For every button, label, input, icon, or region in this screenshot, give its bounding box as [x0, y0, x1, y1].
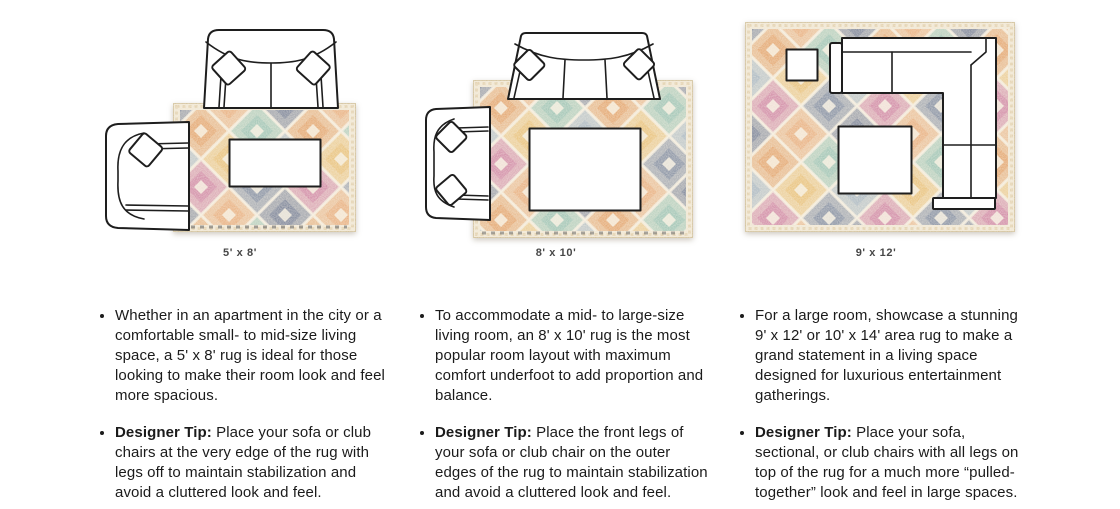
bullet-item: For a large room, showcase a stunning 9'… [755, 306, 1033, 406]
bullet-list: For a large room, showcase a stunning 9'… [737, 306, 1033, 503]
bullet-text: For a large room, showcase a stunning 9'… [755, 307, 1018, 404]
bullet-item: To accommodate a mid- to large-size livi… [435, 306, 713, 406]
rug-size-guide: 5' x 8' 8' x 10' [0, 0, 1120, 509]
coffee-table-icon [837, 125, 913, 195]
bullet-list: To accommodate a mid- to large-size livi… [417, 306, 713, 503]
coffee-table-icon [528, 127, 642, 212]
designer-tip-label: Designer Tip: [435, 424, 532, 441]
sofa-top-view-icon [505, 30, 663, 103]
bullet-item: Whether in an apartment in the city or a… [115, 306, 393, 406]
sofa-top-view-icon [200, 26, 342, 112]
bullet-item: Designer Tip: Place your sofa or club ch… [115, 423, 393, 503]
text-column-8x10: To accommodate a mid- to large-size livi… [417, 306, 713, 503]
coffee-table-icon [228, 138, 322, 188]
bullet-list: Whether in an apartment in the city or a… [97, 306, 393, 503]
size-label-9x12: 9' x 12' [856, 247, 897, 259]
size-label-5x8: 5' x 8' [223, 247, 257, 259]
designer-tip-label: Designer Tip: [755, 424, 852, 441]
bullet-text: Whether in an apartment in the city or a… [115, 307, 385, 404]
size-label-8x10: 8' x 10' [536, 247, 577, 259]
side-table-icon [785, 48, 819, 82]
club-chair-top-view-icon [102, 119, 192, 233]
bullet-item: Designer Tip: Place the front legs of yo… [435, 423, 713, 503]
bullet-text: To accommodate a mid- to large-size livi… [435, 307, 703, 404]
text-column-9x12: For a large room, showcase a stunning 9'… [737, 306, 1033, 503]
text-column-5x8: Whether in an apartment in the city or a… [97, 306, 393, 503]
club-chair-top-view-icon [422, 104, 493, 223]
designer-tip-label: Designer Tip: [115, 424, 212, 441]
bullet-item: Designer Tip: Place your sofa, sectional… [755, 423, 1033, 503]
